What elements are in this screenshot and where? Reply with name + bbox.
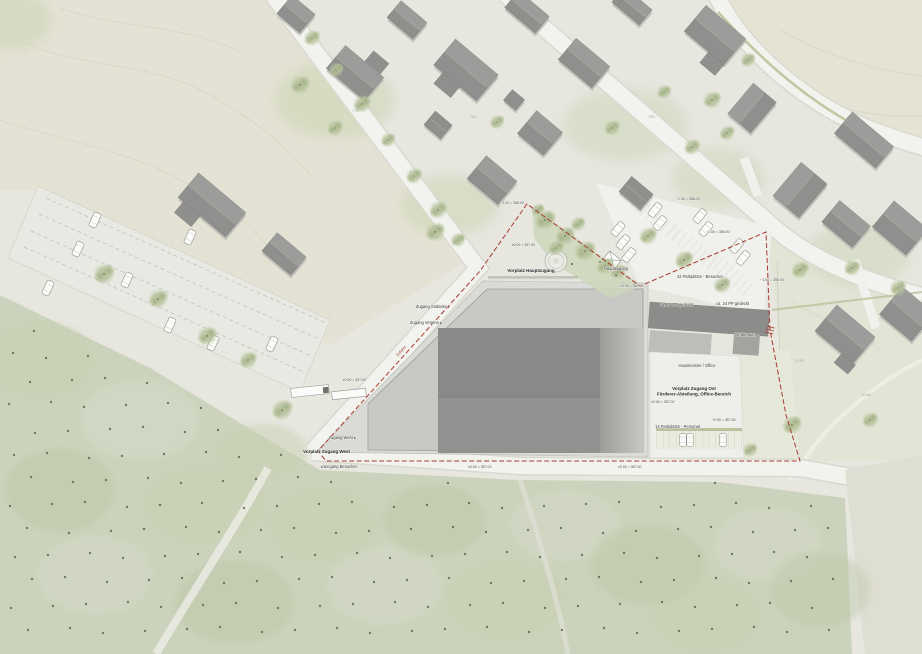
elevation-label: ±0.00 = 357.00 bbox=[620, 284, 643, 288]
elevation-label: ±0.00 = 357.00 bbox=[618, 465, 641, 469]
elevation-label: −1.00 = 356.00 bbox=[760, 278, 784, 282]
parcel-number: 781 bbox=[470, 114, 477, 119]
elevation-label: ±0.00 = 357.00 bbox=[651, 400, 674, 404]
label-parkplaetze-personal: 13 Parkplätze - Personal bbox=[655, 424, 700, 429]
parcel-number: 783 bbox=[648, 114, 655, 119]
bus-stop-post bbox=[323, 387, 329, 394]
main-building bbox=[438, 328, 643, 453]
label-vorplatz-hauptzugang: Vorplatz Hauptzugang bbox=[507, 268, 554, 273]
label-pp-gedeckt-rechts: ca. 24 PP gedeckt bbox=[716, 301, 750, 306]
label-zugang-suedseite: Zugang Südseite ▸ bbox=[416, 304, 450, 309]
elevation-label: −1.00 = 356.00 bbox=[676, 197, 700, 201]
elevation-label: ±0.00 = 357.00 bbox=[343, 378, 366, 382]
parcel-number: 779 bbox=[352, 108, 359, 113]
label-hauptzugang-arrow: ▼ bbox=[614, 273, 618, 278]
elevation-label: −1.00 = 356.00 bbox=[706, 230, 730, 234]
site-plan-drawing: Vorplatz Hauptzugang Hauptzugang ▼ Zugan… bbox=[0, 0, 922, 654]
label-hausmeister-office: Hausmeister / Office bbox=[678, 363, 716, 368]
label-pp-gedeckt-links: ca. 20 PP gedeckt bbox=[660, 302, 694, 307]
site-plan-canvas: Vorplatz Hauptzugang Hauptzugang ▼ Zugan… bbox=[0, 0, 922, 654]
label-vorplatz-zugang-ost-2: Förderer-Abteilung, Office-Bereich bbox=[657, 392, 731, 397]
label-vorplatz-zugang-ost-1: Vorplatz Zugang Ost bbox=[672, 386, 716, 391]
parcel-number: 2156 bbox=[862, 392, 872, 397]
label-zugang-west: Zugang West ▸ bbox=[329, 435, 356, 440]
label-vorplatz-zugang-west: Vorplatz Zugang West bbox=[303, 449, 350, 454]
sports-hall-roof-north bbox=[438, 328, 600, 397]
staff-parking-stalls bbox=[656, 431, 742, 449]
sports-hall-roof-south bbox=[438, 397, 600, 453]
elevation-label: ±0.00 = 357.00 bbox=[512, 243, 535, 247]
roof-curved-edge bbox=[600, 328, 643, 453]
parcel-number: 2159 bbox=[795, 358, 805, 363]
elevation-label: −1.00 = 356.00 bbox=[500, 201, 524, 205]
elevation-label: ±0.00 = 357.00 bbox=[468, 465, 491, 469]
label-geraeteraum: Geräteraum bbox=[734, 332, 756, 337]
label-eingang-besucher: ◂ Eingang Besucher bbox=[320, 464, 357, 469]
label-parkplaetze-besucher: 42 Parkplätze - Besucher bbox=[677, 274, 724, 279]
elevation-label: +0.50 = 357.50 bbox=[712, 418, 736, 422]
fountain-center bbox=[553, 258, 559, 264]
label-hauptzugang: Hauptzugang bbox=[604, 266, 629, 271]
label-zugang-vereine: Zugang Vereine ▸ bbox=[410, 320, 442, 325]
